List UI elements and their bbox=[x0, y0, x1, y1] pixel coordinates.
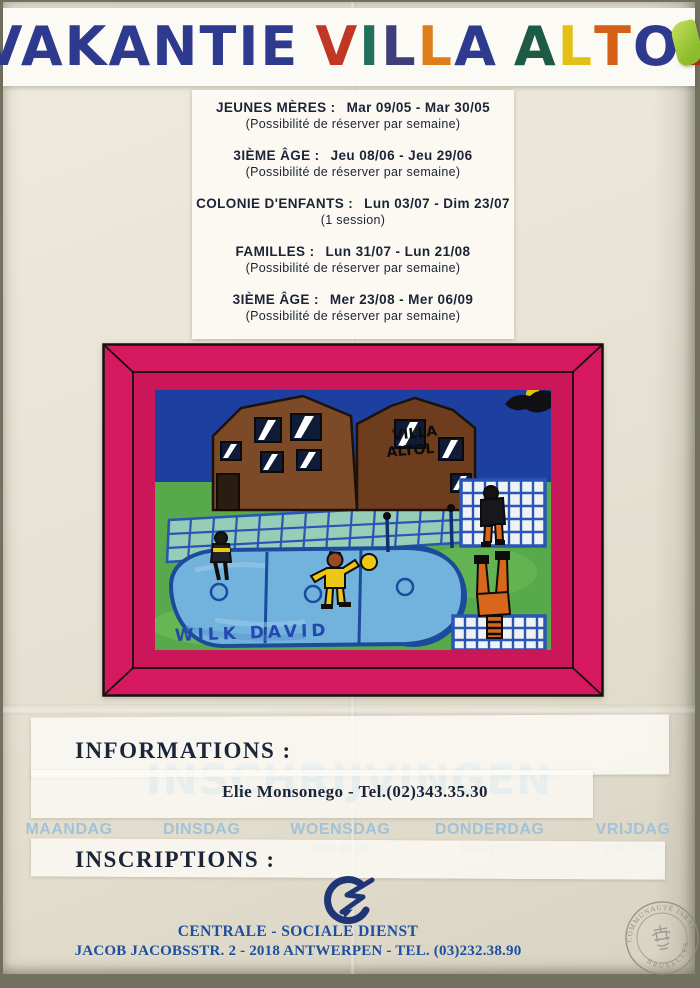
poster-title: VAKANTIE VILLA ALTOL bbox=[3, 20, 695, 74]
schedule-list: JEUNES MÈRES :Mar 09/05 - Mar 30/05(Poss… bbox=[192, 99, 514, 324]
schedule-item: 3IÈME ÂGE :Mer 23/08 - Mer 06/09(Possibi… bbox=[192, 291, 514, 324]
footer: CENTRALE - SOCIALE DIENST JACOB JACOBSST… bbox=[3, 923, 593, 960]
schedule-item: COLONIE D'ENFANTS :Lun 03/07 - Dim 23/07… bbox=[192, 195, 514, 228]
stamp-emblem bbox=[651, 924, 673, 951]
title-letter: V bbox=[315, 20, 359, 74]
framed-drawing: VILLA ALTOL bbox=[102, 343, 604, 697]
title-letter: L bbox=[558, 20, 594, 74]
schedule-item: FAMILLES :Lun 31/07 - Lun 21/08(Possibil… bbox=[192, 243, 514, 276]
title-word-villa: VILLA bbox=[315, 20, 498, 74]
schedule-item: JEUNES MÈRES :Mar 09/05 - Mar 30/05(Poss… bbox=[192, 99, 514, 132]
title-letter: I bbox=[359, 20, 381, 74]
schedule-item: 3IÈME ÂGE :Jeu 08/06 - Jeu 29/06(Possibi… bbox=[192, 147, 514, 180]
title-letter: T bbox=[594, 20, 633, 74]
drawing-frame-svg: VILLA ALTOL bbox=[102, 343, 604, 697]
contact-line: Elie Monsonego - Tel.(02)343.35.30 bbox=[5, 782, 700, 802]
title-letter: L bbox=[381, 20, 417, 74]
community-seal-stamp: COMMUNAUTÉ ISRAÉLITE DE BRUXELLES bbox=[617, 893, 700, 983]
horizontal-fold-crease bbox=[3, 704, 695, 715]
footer-address: JACOB JACOBSSTR. 2 - 2018 ANTWERPEN - TE… bbox=[3, 943, 593, 960]
title-letter: A bbox=[514, 20, 558, 74]
inscriptions-label: INSCRIPTIONS : bbox=[75, 847, 276, 873]
informations-label: INFORMATIONS : bbox=[75, 738, 292, 764]
footer-org-name: CENTRALE - SOCIALE DIENST bbox=[3, 923, 593, 941]
svg-text:BRUXELLES: BRUXELLES bbox=[643, 939, 695, 973]
title-letter: L bbox=[418, 20, 454, 74]
poster: VAKANTIE VILLA ALTOL JEUNES MÈRES :Mar 0… bbox=[3, 2, 695, 974]
org-logo-icon bbox=[319, 876, 375, 929]
painting-house: VILLA ALTOL bbox=[213, 396, 475, 510]
stamp-text-bottom: BRUXELLES bbox=[643, 939, 695, 973]
title-letter: A bbox=[454, 20, 498, 74]
title-word-vakantie: VAKANTIE bbox=[0, 20, 299, 74]
poster-photo: { "title": { "word1": "VAKANTIE", "word1… bbox=[0, 0, 700, 981]
painting-ball bbox=[361, 554, 377, 570]
child-painting: VILLA ALTOL bbox=[150, 387, 557, 650]
schedule-box: JEUNES MÈRES :Mar 09/05 - Mar 30/05(Poss… bbox=[192, 90, 514, 339]
